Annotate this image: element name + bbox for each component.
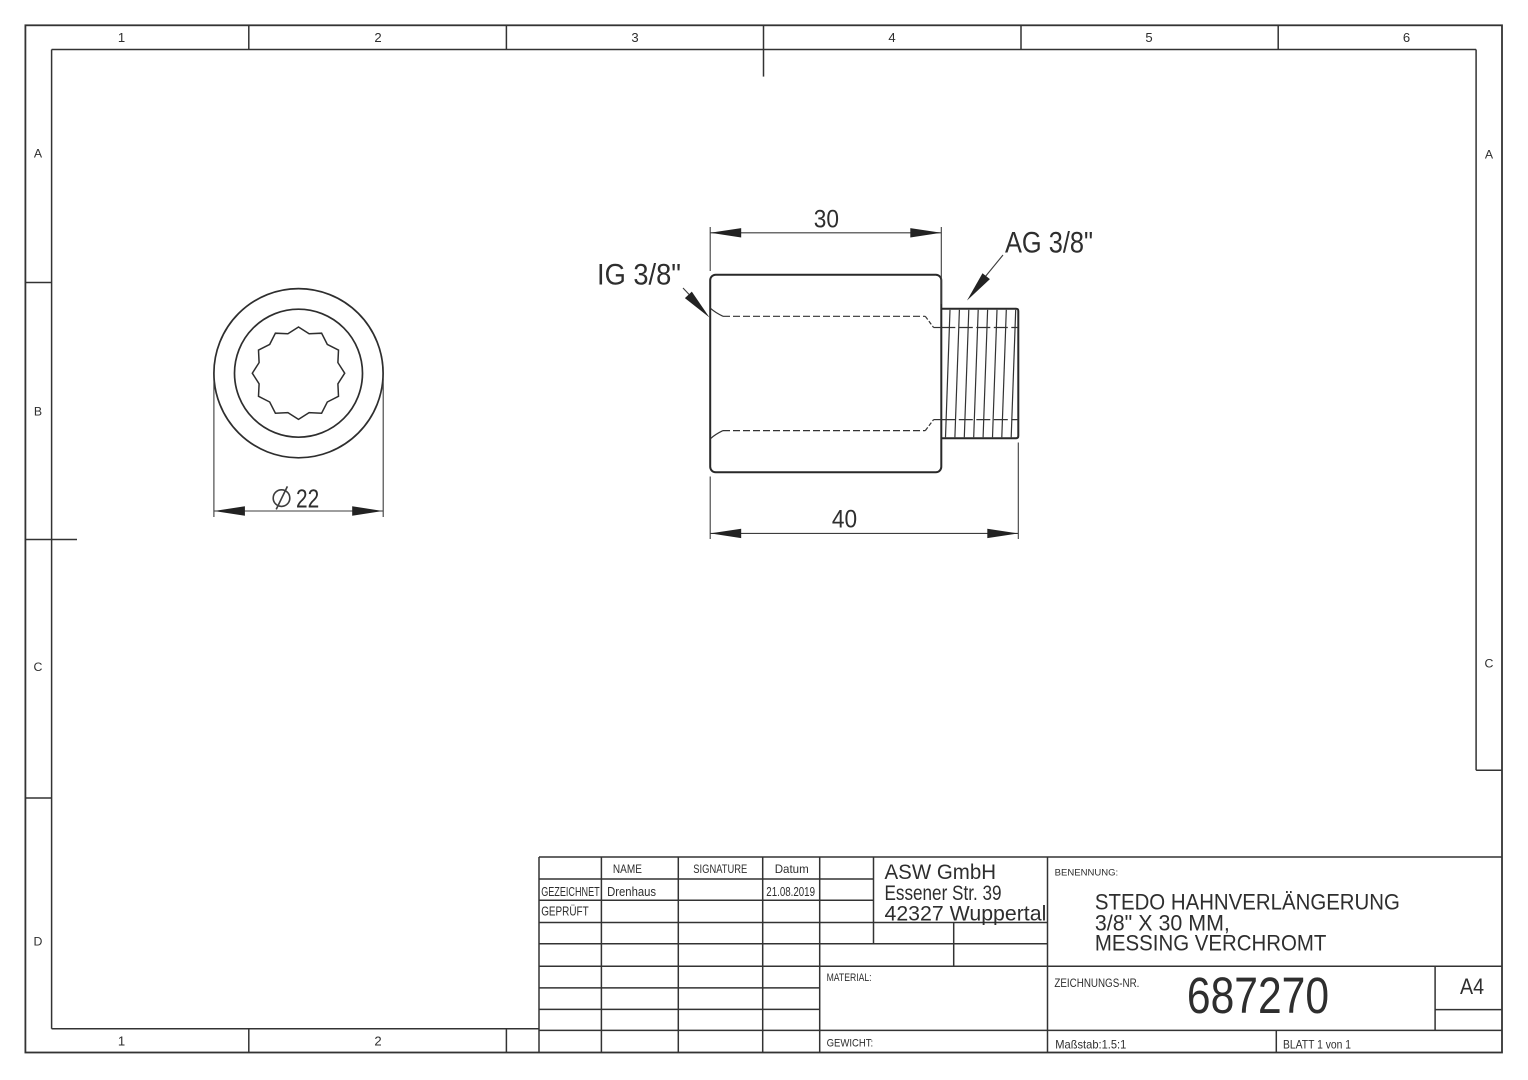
svg-text:D: D	[34, 934, 43, 948]
svg-text:C: C	[1485, 656, 1494, 670]
svg-text:GEPRÜFT: GEPRÜFT	[541, 903, 589, 918]
svg-text:A: A	[34, 146, 43, 160]
svg-text:A: A	[1485, 147, 1494, 161]
svg-text:BLATT 1 von 1: BLATT 1 von 1	[1283, 1037, 1351, 1051]
svg-text:6: 6	[1403, 30, 1410, 45]
svg-text:4: 4	[888, 30, 895, 45]
svg-text:BENENNUNG:: BENENNUNG:	[1055, 868, 1119, 878]
svg-text:Drenhaus: Drenhaus	[607, 884, 656, 899]
svg-text:ASW GmbH: ASW GmbH	[885, 861, 997, 884]
svg-text:C: C	[34, 660, 43, 674]
svg-text:GEWICHT:: GEWICHT:	[827, 1038, 874, 1050]
svg-text:3: 3	[631, 30, 638, 45]
svg-text:2: 2	[374, 1033, 381, 1048]
svg-text:MESSING VERCHROMT: MESSING VERCHROMT	[1095, 930, 1327, 955]
svg-text:21.08.2019: 21.08.2019	[766, 884, 815, 899]
svg-text:ZEICHNUNGS-NR.: ZEICHNUNGS-NR.	[1054, 977, 1139, 990]
svg-text:5: 5	[1145, 30, 1152, 45]
svg-text:22: 22	[296, 486, 319, 514]
svg-text:40: 40	[832, 506, 857, 534]
svg-text:687270: 687270	[1187, 967, 1329, 1024]
svg-text:2: 2	[374, 30, 381, 45]
svg-text:IG 3/8": IG 3/8"	[597, 259, 681, 292]
svg-text:GEZEICHNET: GEZEICHNET	[541, 884, 600, 899]
svg-text:Datum: Datum	[775, 862, 809, 876]
svg-text:MATERIAL:: MATERIAL:	[827, 972, 872, 984]
svg-text:1: 1	[118, 30, 125, 45]
svg-text:B: B	[34, 404, 42, 418]
svg-text:Maßstab:1.5:1: Maßstab:1.5:1	[1055, 1037, 1126, 1051]
svg-text:NAME: NAME	[613, 862, 642, 876]
svg-text:1: 1	[118, 1033, 125, 1048]
svg-text:30: 30	[814, 206, 839, 234]
svg-text:AG 3/8": AG 3/8"	[1005, 227, 1093, 260]
svg-text:SIGNATURE: SIGNATURE	[693, 862, 747, 876]
svg-text:A4: A4	[1460, 974, 1484, 999]
svg-text:42327 Wuppertal: 42327 Wuppertal	[885, 903, 1047, 926]
